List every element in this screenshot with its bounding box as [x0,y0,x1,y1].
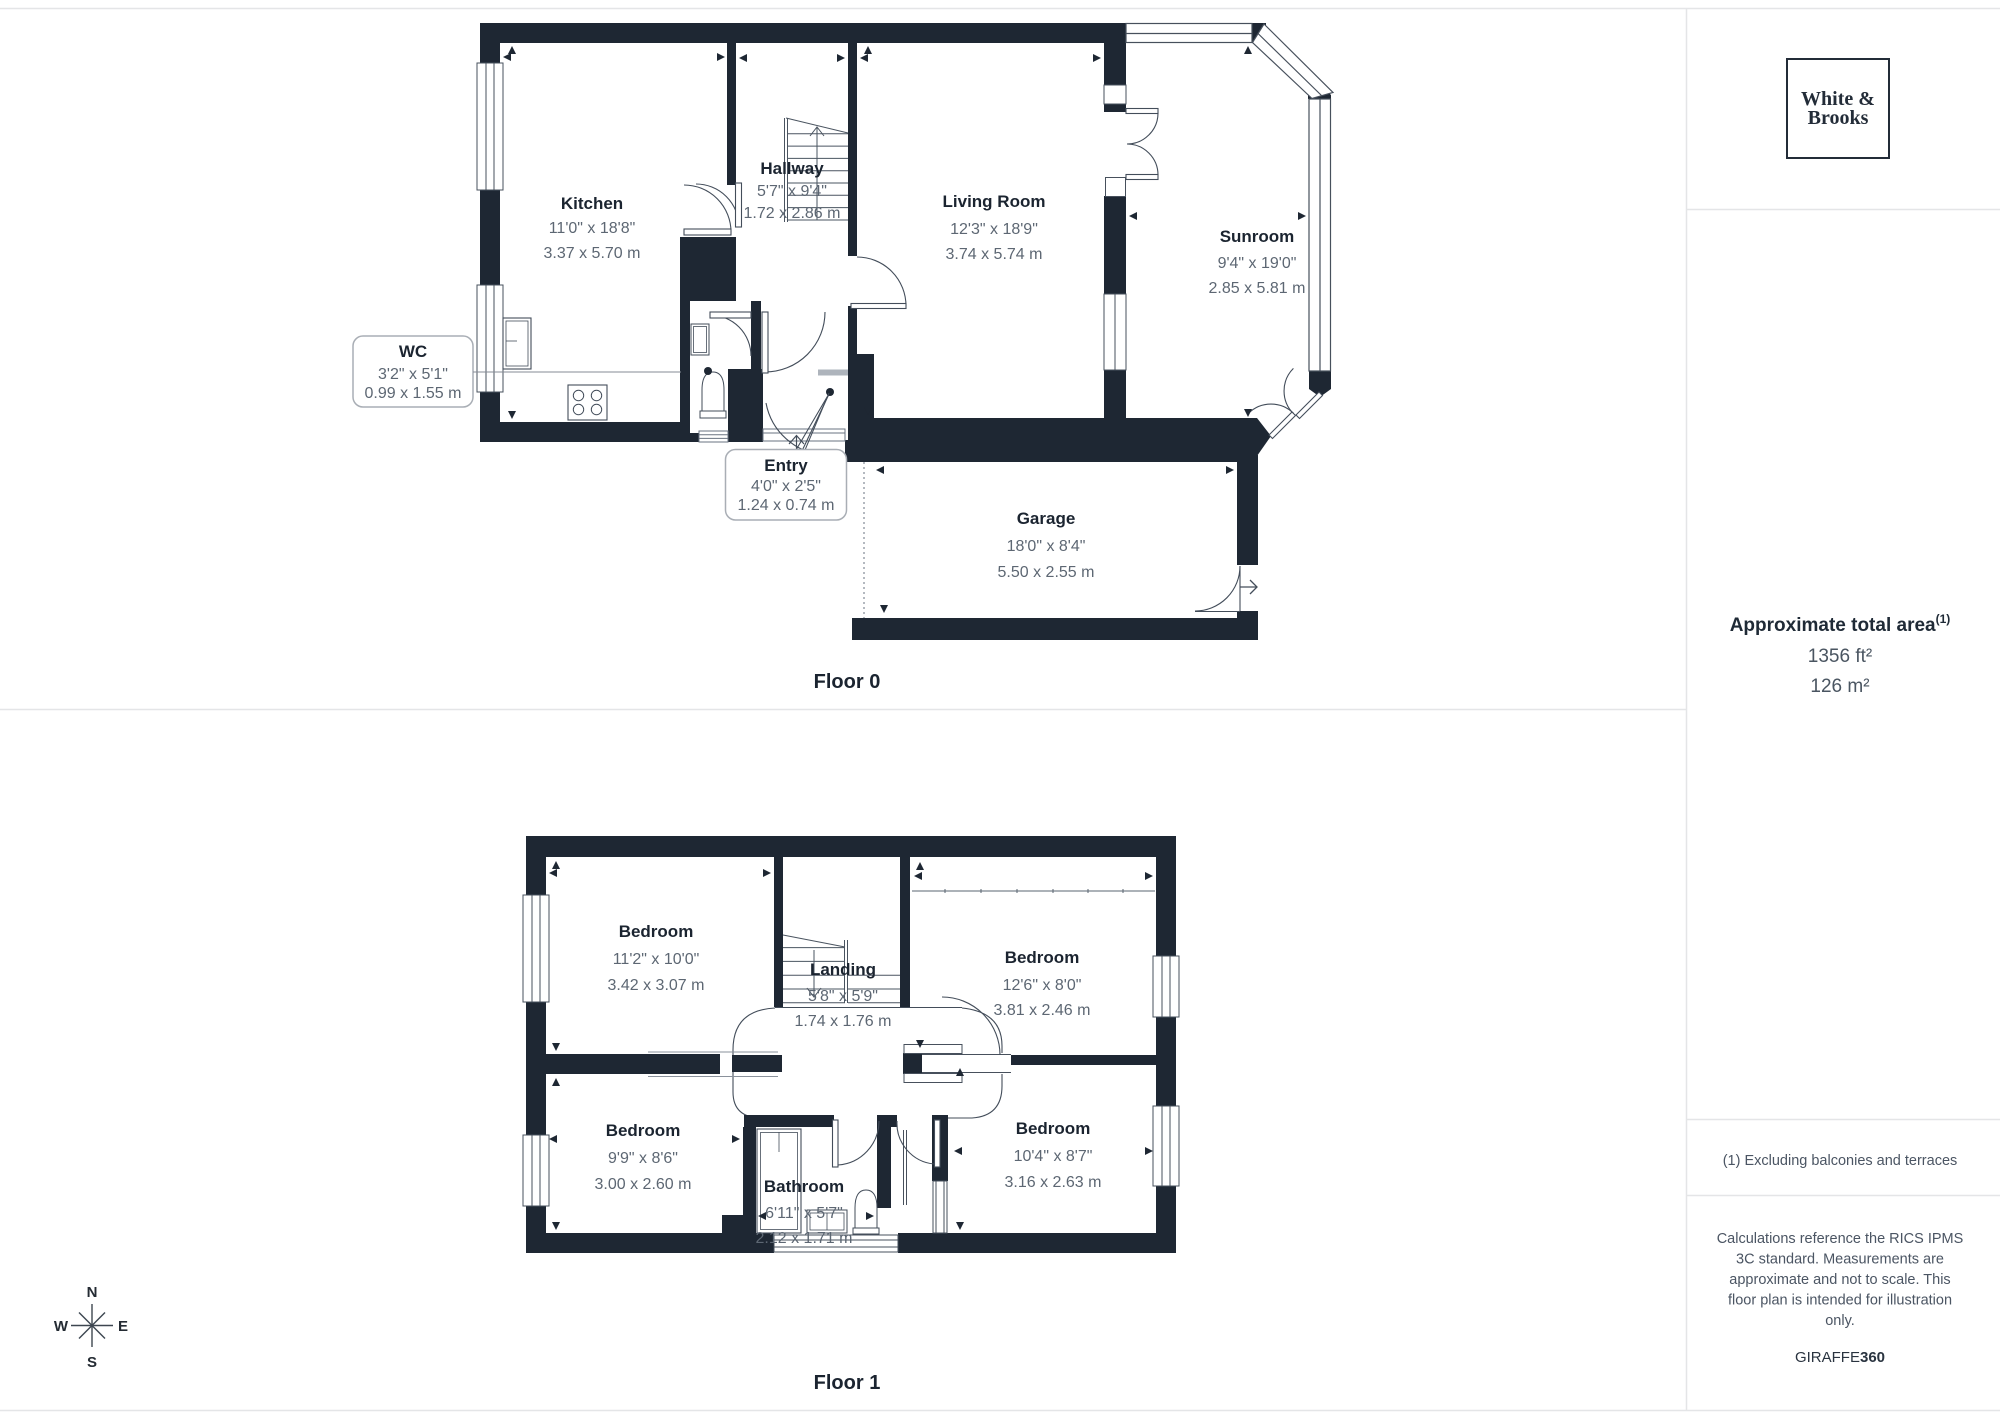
svg-text:0.99 x 1.55 m: 0.99 x 1.55 m [365,385,462,402]
svg-text:11'0" x 18'8": 11'0" x 18'8" [549,220,636,237]
svg-text:3C standard. Measurements are: 3C standard. Measurements are [1736,1252,1944,1268]
svg-text:9'4" x 19'0": 9'4" x 19'0" [1218,255,1297,272]
svg-text:6'11" x 5'7": 6'11" x 5'7" [765,1205,843,1222]
svg-text:9'9" x 8'6": 9'9" x 8'6" [608,1150,678,1167]
svg-text:1356 ft²: 1356 ft² [1808,646,1872,667]
svg-text:Bedroom: Bedroom [606,1121,681,1140]
svg-text:floor plan is intended for ill: floor plan is intended for illustration [1728,1293,1952,1309]
svg-text:3.37 x 5.70 m: 3.37 x 5.70 m [544,245,641,262]
svg-text:3.81 x 2.46 m: 3.81 x 2.46 m [994,1002,1091,1019]
svg-text:Approximate total area(1): Approximate total area(1) [1730,612,1951,636]
svg-text:11'2" x 10'0": 11'2" x 10'0" [613,951,700,968]
svg-text:1.74 x 1.76 m: 1.74 x 1.76 m [795,1013,892,1030]
svg-text:5.50 x 2.55 m: 5.50 x 2.55 m [998,564,1095,581]
svg-text:3'2" x 5'1": 3'2" x 5'1" [378,366,448,383]
svg-text:Garage: Garage [1017,509,1076,528]
svg-text:Bedroom: Bedroom [1016,1119,1091,1138]
svg-text:12'6" x 8'0": 12'6" x 8'0" [1003,977,1082,994]
svg-text:126 m²: 126 m² [1810,676,1869,697]
svg-text:2.85 x 5.81 m: 2.85 x 5.81 m [1209,280,1306,297]
svg-text:E: E [118,1318,128,1335]
svg-text:approximate and not to scale.: approximate and not to scale. This [1729,1272,1950,1288]
svg-text:3.00 x 2.60 m: 3.00 x 2.60 m [595,1176,692,1193]
svg-text:WC: WC [399,342,427,361]
svg-text:3.42 x 3.07 m: 3.42 x 3.07 m [608,977,705,994]
svg-text:Calculations reference the RIC: Calculations reference the RICS IPMS [1717,1231,1964,1247]
svg-text:5'8" x 5'9": 5'8" x 5'9" [808,988,878,1005]
svg-text:Sunroom: Sunroom [1220,227,1295,246]
svg-text:only.: only. [1825,1313,1855,1329]
svg-text:10'4" x 8'7": 10'4" x 8'7" [1014,1148,1093,1165]
svg-text:Floor 0: Floor 0 [814,671,881,693]
svg-text:1.72 x 2.86 m: 1.72 x 2.86 m [744,205,841,222]
svg-text:Bathroom: Bathroom [764,1177,844,1196]
svg-text:Bedroom: Bedroom [1005,948,1080,967]
svg-text:Bedroom: Bedroom [619,922,694,941]
svg-text:Entry: Entry [764,456,808,475]
svg-text:Floor 1: Floor 1 [814,1372,881,1394]
svg-text:Landing: Landing [810,960,876,979]
svg-text:Living Room: Living Room [943,192,1046,211]
svg-text:4'0" x 2'5": 4'0" x 2'5" [751,478,821,495]
svg-text:12'3" x 18'9": 12'3" x 18'9" [950,221,1038,238]
svg-text:GIRAFFE360: GIRAFFE360 [1795,1349,1885,1366]
svg-text:S: S [87,1354,97,1371]
svg-text:2.12 x 1.71 m: 2.12 x 1.71 m [756,1230,853,1247]
svg-text:1.24 x 0.74 m: 1.24 x 0.74 m [738,497,835,514]
svg-text:Kitchen: Kitchen [561,194,623,213]
svg-text:W: W [54,1318,69,1335]
svg-text:5'7" x 9'4": 5'7" x 9'4" [757,183,827,200]
svg-text:Hallway: Hallway [760,159,824,178]
svg-text:(1) Excluding balconies and te: (1) Excluding balconies and terraces [1723,1153,1958,1169]
svg-text:3.16 x 2.63 m: 3.16 x 2.63 m [1005,1174,1102,1191]
svg-text:3.74 x 5.74 m: 3.74 x 5.74 m [946,246,1043,263]
svg-text:Brooks: Brooks [1808,107,1869,129]
svg-text:18'0" x 8'4": 18'0" x 8'4" [1007,538,1086,555]
svg-text:N: N [87,1284,98,1301]
